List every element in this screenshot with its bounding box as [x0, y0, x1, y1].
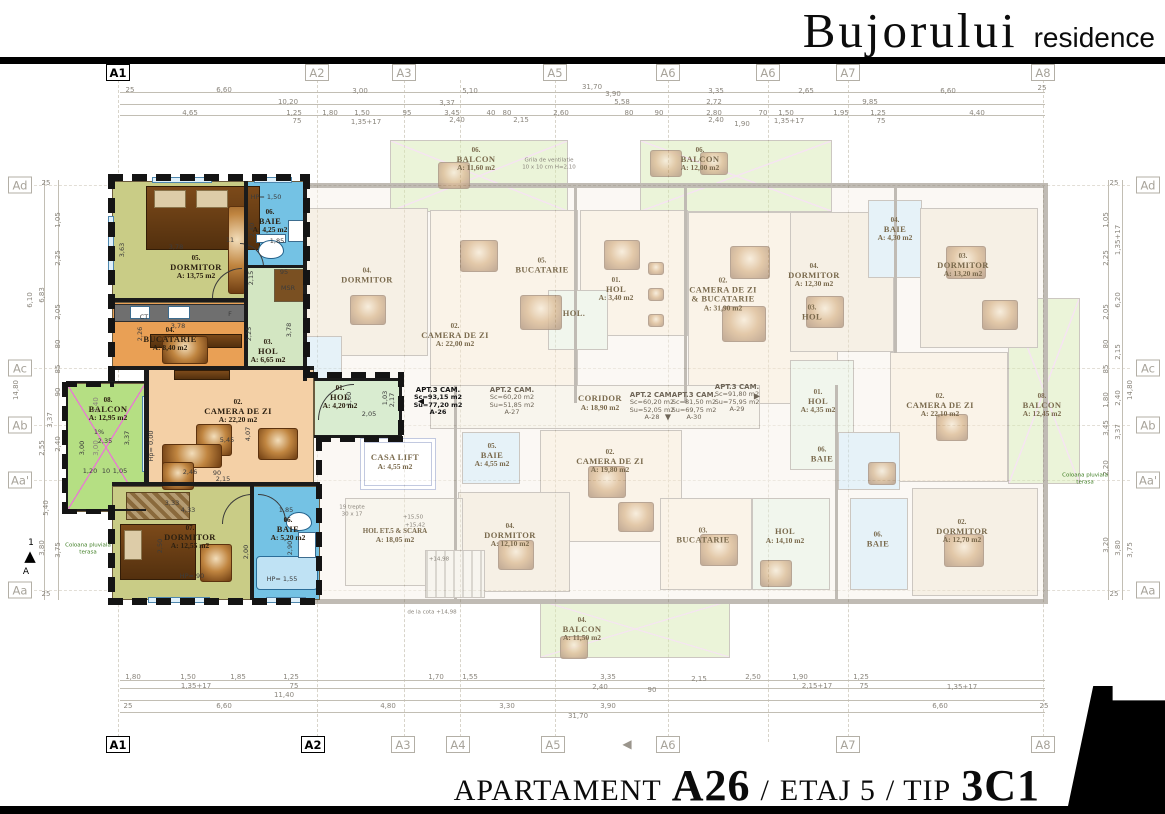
room-label: 03.HOLA: 6,65 m2	[251, 339, 286, 365]
dimension-text: 3,45	[1102, 420, 1110, 436]
room-label: 01.HOLA: 3,40 m2	[599, 277, 634, 303]
room-label-line: A: 22,10 m2	[906, 410, 974, 418]
room-label-line: A: 4,35 m2	[801, 406, 836, 414]
room-label: 03.BUCATARIE	[676, 527, 729, 544]
dimension-text: 1,05	[1102, 212, 1110, 228]
interior-dimension-text: 4,33	[181, 506, 195, 514]
dimension-text: 1,25	[286, 109, 302, 117]
room-label-line: BAIE	[811, 454, 833, 464]
interior-dimension-text: 5,45	[220, 436, 234, 444]
apartment-boundary-dash	[62, 382, 67, 514]
interior-dimension-text: 2,35	[98, 437, 112, 445]
ghost-furniture	[350, 295, 386, 325]
dimension-text: 5,40	[42, 500, 50, 516]
dimension-text: 3,37	[46, 412, 54, 428]
interior-dimension-text: 3,78	[171, 322, 185, 330]
dimension-text: 3,37	[439, 99, 455, 107]
dimension-text: 2,40	[1114, 390, 1122, 406]
grid-ref-right-Ab: Ab	[1136, 417, 1160, 434]
dimension-text: 3,00	[352, 87, 368, 95]
room-label: 05.BUCATARIE	[515, 257, 568, 274]
room-label-line: A: 11,60 m2	[457, 164, 496, 172]
room-label-line: A: 14,10 m2	[766, 537, 805, 545]
interior-dimension-text: HP= 1,50	[251, 193, 282, 201]
grid-ref-bottom-A8: A8	[1031, 736, 1055, 753]
room-label: 04.DORMITORA: 12,30 m2	[788, 263, 840, 289]
dimension-text: 3,35	[708, 87, 724, 95]
section-marker: ▲	[24, 547, 36, 565]
dimension-text: 90	[54, 388, 62, 397]
room-label: 04.BAIEA: 4,30 m2	[878, 217, 913, 243]
room-label: HOL.	[563, 309, 586, 319]
grid-ref-right-Aa': Aa'	[1136, 472, 1160, 489]
room-label: 04.DORMITORA: 12,10 m2	[484, 523, 536, 549]
plan-note-line: terasa	[1062, 479, 1108, 486]
furniture-bed	[174, 370, 230, 380]
section-marker: ◀	[622, 737, 631, 751]
grid-ref-bottom-A5: A5	[541, 736, 565, 753]
dimension-text: 2,40	[708, 116, 724, 124]
wall	[314, 378, 402, 381]
interior-dimension-text: 3,33	[165, 499, 179, 507]
interior-dimension-text: Hp= 0,00	[147, 431, 155, 462]
grid-ref-bottom-A2: A2	[301, 736, 325, 753]
dimension-text: 2,15+17	[802, 682, 832, 690]
room-label: CASA LIFTA: 4,55 m2	[371, 453, 419, 471]
dimension-text: 2,72	[706, 98, 722, 106]
dimension-text: 6,83	[38, 287, 46, 303]
dimension-text: 6,60	[216, 86, 232, 94]
apartment-tag: APT.3 CAM.Sc=91,80 m2Su=75,95 m2A-29	[715, 383, 760, 413]
dimension-text: 1,35+17	[181, 682, 211, 690]
interior-dimension-text: 2,00	[242, 545, 250, 559]
interior-dimension-text: 2,15	[216, 475, 230, 483]
dimension-text: 80	[625, 109, 634, 117]
room-label-line: A: 3,40 m2	[599, 294, 634, 302]
plan-note: +15,42	[405, 523, 425, 530]
section-marker: ▼	[665, 413, 671, 422]
interior-dimension-text: HP= 90	[180, 572, 205, 580]
grid-ref-left-Ad: Ad	[8, 177, 32, 194]
dimension-text: 6,60	[940, 87, 956, 95]
dimension-text: 3,20	[1102, 537, 1110, 553]
section-marker: 1	[28, 538, 34, 548]
ghost-furniture	[648, 262, 664, 275]
interior-dimension-text: 2,25	[245, 327, 253, 341]
dimension-text: 1,50	[778, 109, 794, 117]
dimension-text: 2,05	[1102, 304, 1110, 320]
dimension-text: 75	[293, 117, 302, 125]
room-label: 02.DORMITORA: 12,70 m2	[936, 519, 988, 545]
dimension-text: 1,95	[833, 109, 849, 117]
grid-ref-right-Ad: Ad	[1136, 177, 1160, 194]
dimension-text: 3,37	[1114, 424, 1122, 440]
dimension-text: 1,80	[322, 109, 338, 117]
interior-dimension-text: 2,50	[156, 539, 164, 553]
apartment-boundary-dash	[316, 436, 404, 442]
plan-note-line: 10 x 10 cm H=2,10	[522, 164, 576, 171]
dimension-text: 2,65	[798, 87, 814, 95]
dimension-text: 6,60	[932, 702, 948, 710]
interior-dimension-text: F	[228, 310, 232, 318]
dimension-text: 70	[759, 109, 768, 117]
dimension-text: 2,05	[54, 304, 62, 320]
dimension-text: 4,80	[380, 702, 396, 710]
grid-ref-right-Ac: Ac	[1136, 360, 1160, 377]
dimension-text: 2,40	[449, 116, 465, 124]
ghost-furniture	[650, 150, 682, 177]
apartment-boundary-dash	[316, 436, 322, 604]
grid-ref-bottom-A3: A3	[391, 736, 415, 753]
dimension-text: 75	[860, 682, 869, 690]
ghost-furniture	[730, 246, 770, 279]
room-label-line: A: 4,55 m2	[371, 463, 419, 471]
dimension-text: 5,10	[462, 87, 478, 95]
dimension-text: 25	[1110, 590, 1119, 598]
dimension-text: 2,40	[92, 397, 100, 413]
dimension-text: 80	[54, 340, 62, 349]
dimension-text: 85	[1102, 365, 1110, 374]
dimension-text: 6,10	[26, 292, 34, 308]
dimension-text: 1,50	[354, 109, 370, 117]
room-label-line: A: 12,70 m2	[936, 536, 988, 544]
room-label-line: BUCATARIE	[515, 265, 568, 275]
grid-ref-bottom-A6: A6	[656, 736, 680, 753]
room-label: 02.CAMERA DE ZIA: 22,10 m2	[906, 393, 974, 419]
room-label-line: A: 4,55 m2	[475, 460, 510, 468]
ghost-wall	[894, 183, 897, 353]
dimension-text: 9,85	[862, 98, 878, 106]
room-label: 04.DORMITOR	[341, 267, 393, 284]
interior-dimension-text: 1%	[94, 428, 104, 436]
caption-slash1: /	[760, 774, 769, 808]
dimension-text: 2,15	[1114, 344, 1122, 360]
ghost-furniture	[460, 240, 498, 272]
room-label-line: A: 12,45 m2	[1023, 410, 1062, 418]
dimension-text: 4,40	[969, 109, 985, 117]
interior-dimension-text: 10	[102, 467, 110, 475]
dimension-text: 1,90	[734, 120, 750, 128]
room-label: 05.BAIEA: 4,55 m2	[475, 443, 510, 469]
grid-ref-top-A3: A3	[392, 64, 416, 81]
dimension-text: 3,80	[1114, 540, 1122, 556]
dimension-text: 2,25	[1102, 250, 1110, 266]
plan-note-line: Grila de ventilatie	[522, 157, 576, 164]
wall	[250, 486, 254, 600]
ghost-wall	[302, 599, 1048, 604]
apartment-boundary-dash	[108, 598, 322, 605]
grid-ref-top-A1: A1	[106, 64, 130, 81]
plan-note: Coloana pluvialaterasa	[65, 542, 111, 555]
dimension-text: 2,15	[691, 675, 707, 683]
interior-dimension-text: 2,40	[248, 223, 256, 237]
grid-ref-bottom-A1: A1	[106, 736, 130, 753]
plan-note-line: 30 x 17	[339, 511, 364, 518]
dimension-text: 25	[1038, 84, 1047, 92]
plan-note: Grila de ventilatie10 x 10 cm H=2,10	[522, 157, 576, 170]
wall	[144, 368, 149, 486]
room-label-line: A: 6,65 m2	[251, 356, 286, 364]
interior-dimension-text: 95	[280, 268, 288, 276]
room-label: HOLA: 14,10 m2	[766, 527, 805, 545]
dimension-text: 2,60	[553, 109, 569, 117]
grid-ref-top-A5: A5	[543, 64, 567, 81]
ghost-furniture	[982, 300, 1018, 330]
room-label: CORIDORA: 18,90 m2	[578, 394, 622, 412]
dimension-text: 2,25	[54, 250, 62, 266]
room-label: 02.CAMERA DE ZIA: 22,20 m2	[204, 399, 272, 425]
ghost-furniture	[760, 560, 792, 587]
floorplan-page: Bujorului residence 05.DORMITORA: 13,75 …	[0, 0, 1165, 814]
interior-dimension-text: 1,05	[113, 467, 127, 475]
room-label: 06.BALCONA: 11,60 m2	[457, 147, 496, 173]
plan-note: de la cota +14,98	[407, 610, 456, 617]
furniture-pillow	[196, 190, 228, 208]
dimension-text: 25	[1110, 179, 1119, 187]
interior-dimension-text: 11	[226, 236, 234, 244]
dimension-text: 95	[403, 109, 412, 117]
interior-dimension-text: 1,20	[83, 467, 97, 475]
room-label: 06.BAIEA: 4,25 m2	[253, 209, 288, 235]
dimension-text: 5,58	[614, 98, 630, 106]
room-label-line: DORMITOR	[341, 275, 393, 285]
dimension-text: 6,60	[216, 702, 232, 710]
caption-floor: ETAJ 5	[780, 774, 876, 808]
dimension-text: 75	[290, 682, 299, 690]
dimension-text: 1,80	[1102, 392, 1110, 408]
interior-dimension-text: MSR	[281, 284, 295, 292]
interior-dimension-text: 2,90	[286, 541, 294, 555]
room-label-line: A: 4,30 m2	[878, 234, 913, 242]
furniture-pillow	[154, 190, 186, 208]
grid-ref-right-Aa: Aa	[1136, 582, 1160, 599]
dimension-text: 2,40	[592, 683, 608, 691]
plan-note-line: +14,98	[429, 557, 449, 564]
furniture-tub	[256, 556, 318, 590]
dimension-text: 25	[42, 179, 51, 187]
dimension-text: 4,65	[182, 109, 198, 117]
furniture-pillow	[124, 530, 142, 560]
dimension-text: 11,40	[274, 691, 294, 699]
dimension-text: 2,40	[54, 436, 62, 452]
room-label-line: A: 12,00 m2	[681, 164, 720, 172]
room-label-line: A: 4,25 m2	[253, 226, 288, 234]
plan-note: +15,50	[403, 515, 423, 522]
interior-dimension-text: 2,46	[183, 468, 197, 476]
room-label: 04.BUCATARIEA: 8,40 m2	[143, 327, 196, 353]
grid-ref-left-Ab: Ab	[8, 417, 32, 434]
dimension-text: 1,55	[462, 673, 478, 681]
dimension-text: 1,25	[283, 673, 299, 681]
grid-ref-top-A8: A8	[1031, 64, 1055, 81]
room-label-line: HOL.	[563, 309, 586, 319]
room-label: 03.HOL	[802, 304, 822, 321]
dimension-text: 10,20	[278, 98, 298, 106]
ghost-wall	[684, 183, 687, 403]
dimension-text: 25	[42, 590, 51, 598]
dimension-text: 3,75	[1126, 542, 1134, 558]
apartment-boundary-dash	[62, 382, 114, 387]
furniture-white	[288, 220, 304, 242]
room-label: 06.BALCONA: 12,00 m2	[681, 147, 720, 173]
apartment-tag-line: A-30	[672, 414, 717, 421]
dimension-text: 6,20	[1114, 292, 1122, 308]
floorplan-drawing: 05.DORMITORA: 13,75 m206.BAIEA: 4,25 m20…	[0, 0, 1165, 814]
dimension-text: 1,35+17	[1114, 225, 1122, 255]
room-label-line: A: 22,20 m2	[204, 416, 272, 424]
dimension-text: 75	[877, 117, 886, 125]
ghost-furniture	[604, 240, 640, 270]
apartment-boundary-dash	[398, 372, 404, 440]
dimension-text: 1,70	[428, 673, 444, 681]
interior-dimension-text: 3,37	[123, 431, 131, 445]
room-label-line: A: 18,05 m2	[363, 536, 427, 544]
dimension-text: 3,90	[605, 90, 621, 98]
wall	[112, 366, 314, 370]
dimension-text: 1,05	[54, 212, 62, 228]
dimension-text: 1,25	[870, 109, 886, 117]
dimension-text: 2,50	[745, 673, 761, 681]
grid-ref-top-A6: A6	[756, 64, 780, 81]
grid-ref-left-Aa: Aa	[8, 582, 32, 599]
dimension-text: 1,35+17	[774, 117, 804, 125]
apartment-tag: APT.2 CAM.Sc=60,20 m2Su=51,85 m2A-27	[490, 386, 535, 416]
room-label-line: BUCATARIE	[676, 535, 729, 545]
ghost-furniture	[520, 295, 562, 330]
furniture-furn	[258, 428, 298, 460]
dimension-text: 2,55	[38, 440, 46, 456]
interior-dimension-text: 3,78	[285, 323, 293, 337]
dimension-text: 40	[487, 109, 496, 117]
footer-rule	[0, 806, 1165, 814]
dimension-text: 31,70	[582, 83, 602, 91]
room-label-line: HOL	[802, 312, 822, 322]
room-label: 08.BALCONA: 12,45 m2	[1023, 393, 1062, 419]
apartment-boundary-dash	[303, 174, 310, 378]
plan-note-line: de la cota +14,98	[407, 610, 456, 617]
section-marker: ▶	[754, 392, 760, 401]
caption-apartment-number: A26	[672, 760, 751, 811]
plan-note-line: +15,50	[403, 515, 423, 522]
interior-dimension-text: 2,17	[388, 393, 396, 407]
apartment-boundary-dash	[303, 372, 404, 378]
dimension-text: 1,35+17	[351, 118, 381, 126]
room-label: 05.DORMITORA: 13,75 m2	[170, 255, 222, 281]
dimension-text: 3,90	[600, 702, 616, 710]
dimension-text: 1,90	[792, 673, 808, 681]
room-label-line: A: 12,55 m2	[164, 542, 216, 550]
room-label-line: A: 31,90 m2	[689, 304, 757, 312]
plan-note-line: 19 trepte	[339, 504, 364, 511]
plan-note: 19 trepte30 x 17	[339, 504, 364, 517]
dimension-text: 3,80	[38, 540, 46, 556]
dimension-text: 80	[503, 109, 512, 117]
interior-dimension-text: 1,85	[279, 506, 293, 514]
dimension-text: 3,35	[600, 673, 616, 681]
ghost-wall	[574, 183, 577, 403]
interior-dimension-text: 2,15	[247, 271, 255, 285]
plan-note-line: +15,42	[405, 523, 425, 530]
dimension-text: 3,30	[499, 702, 515, 710]
apartment-caption: APARTAMENT A26 / ETAJ 5 / TIP 3C1	[0, 760, 1040, 806]
apartment-tag: APT.3 CAM.Sc=81,50 m2Su=69,75 m2A-30	[672, 391, 717, 421]
plan-note: +14,98	[429, 557, 449, 564]
interior-dimension-text: 3,78	[169, 243, 183, 251]
furniture-white	[168, 306, 190, 319]
dimension-text: 25	[1040, 702, 1049, 710]
interior-dimension-text: HP= 1,55	[267, 575, 298, 583]
room-label-line: BAIE	[867, 539, 889, 549]
interior-dimension-text: 3,00	[78, 441, 86, 455]
ghost-furniture	[648, 314, 664, 327]
grid-ref-top-A2: A2	[305, 64, 329, 81]
plan-note-line: Coloana pluviala	[1062, 472, 1108, 479]
dimension-text: 25	[126, 86, 135, 94]
plan-note-line: Coloana pluviala	[65, 542, 111, 549]
room-label-line: A: 18,90 m2	[578, 404, 622, 412]
interior-dimension-text: CT	[140, 313, 149, 321]
dimension-text: 14,80	[1126, 380, 1134, 400]
dimension-text: 2,15	[513, 116, 529, 124]
grid-ref-bottom-A7: A7	[836, 736, 860, 753]
dimension-text: 25	[124, 702, 133, 710]
grid-ref-left-Aa': Aa'	[8, 472, 32, 489]
room-label-line: A: 13,20 m2	[937, 270, 989, 278]
room-label: 04.BALCONA: 11,50 m2	[563, 617, 602, 643]
ghost-wall	[835, 385, 838, 600]
room-label: 06.BAIEA: 5,20 m2	[271, 517, 306, 543]
dimension-text: 1,25	[853, 673, 869, 681]
dimension-text: 90	[655, 109, 664, 117]
wall	[112, 298, 246, 302]
room-label: 07.DORMITORA: 12,55 m2	[164, 525, 216, 551]
dimension-text: 31,70	[568, 712, 588, 720]
dimension-text: 90	[648, 686, 657, 694]
interior-dimension-text: 1,60	[345, 392, 353, 406]
dimension-text: 85	[54, 365, 62, 374]
room-label-line: A: 12,10 m2	[484, 540, 536, 548]
room-label: 06.BAIE	[867, 531, 889, 548]
plan-note: Coloana pluvialaterasa	[1062, 472, 1108, 485]
dimension-text: 3,75	[54, 542, 62, 558]
apartment-tag-line: A-26	[414, 409, 463, 416]
section-marker: A	[23, 567, 29, 577]
room-label: 06.BAIE	[811, 446, 833, 463]
room-label-line: A: 12,95 m2	[89, 414, 128, 422]
room-label: 02.CAMERA DE ZIA: 22,00 m2	[421, 323, 489, 349]
interior-dimension-text: 3,63	[118, 243, 126, 257]
room-label-line: A: 11,50 m2	[563, 634, 602, 642]
caption-slash2: / TIP	[886, 774, 951, 808]
room-label-line: A: 13,75 m2	[170, 272, 222, 280]
interior-dimension-text: 2,26	[136, 327, 144, 341]
apartment-boundary-dash	[62, 509, 114, 514]
dimension-text: 1,35+17	[947, 683, 977, 691]
apartment-boundary-dash	[108, 174, 115, 389]
interior-dimension-text: 2,05	[362, 410, 376, 418]
caption-prefix: APARTAMENT	[454, 774, 662, 808]
ghost-furniture	[648, 288, 664, 301]
room-label: HOL ET.5 & SCARAA: 18,05 m2	[363, 528, 427, 544]
ghost-wall	[302, 183, 1048, 188]
caption-type: 3C1	[961, 760, 1040, 811]
interior-dimension-text: 1,85	[270, 237, 284, 245]
grid-ref-top-A6: A6	[656, 64, 680, 81]
room-label: 01.HOLA: 4,35 m2	[801, 389, 836, 415]
section-marker: ◀	[418, 397, 424, 406]
dimension-text: 1,85	[230, 673, 246, 681]
room-label-line: A: 12,30 m2	[788, 280, 840, 288]
